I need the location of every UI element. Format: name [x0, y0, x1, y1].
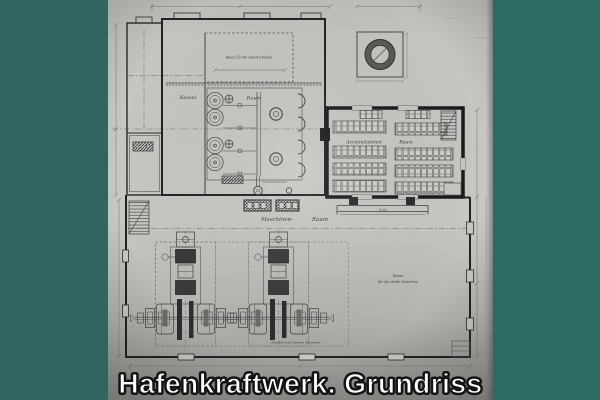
floorplan-photo: Raum für die zweiten Kessel Kessel Raum — [108, 0, 493, 400]
photo-vignette — [108, 0, 493, 400]
teal-border-right — [493, 0, 600, 400]
photo-caption: Hafenkraftwerk. Grundriss — [108, 369, 493, 398]
photo-edge-shadow — [486, 0, 493, 400]
teal-border-left — [0, 0, 108, 400]
